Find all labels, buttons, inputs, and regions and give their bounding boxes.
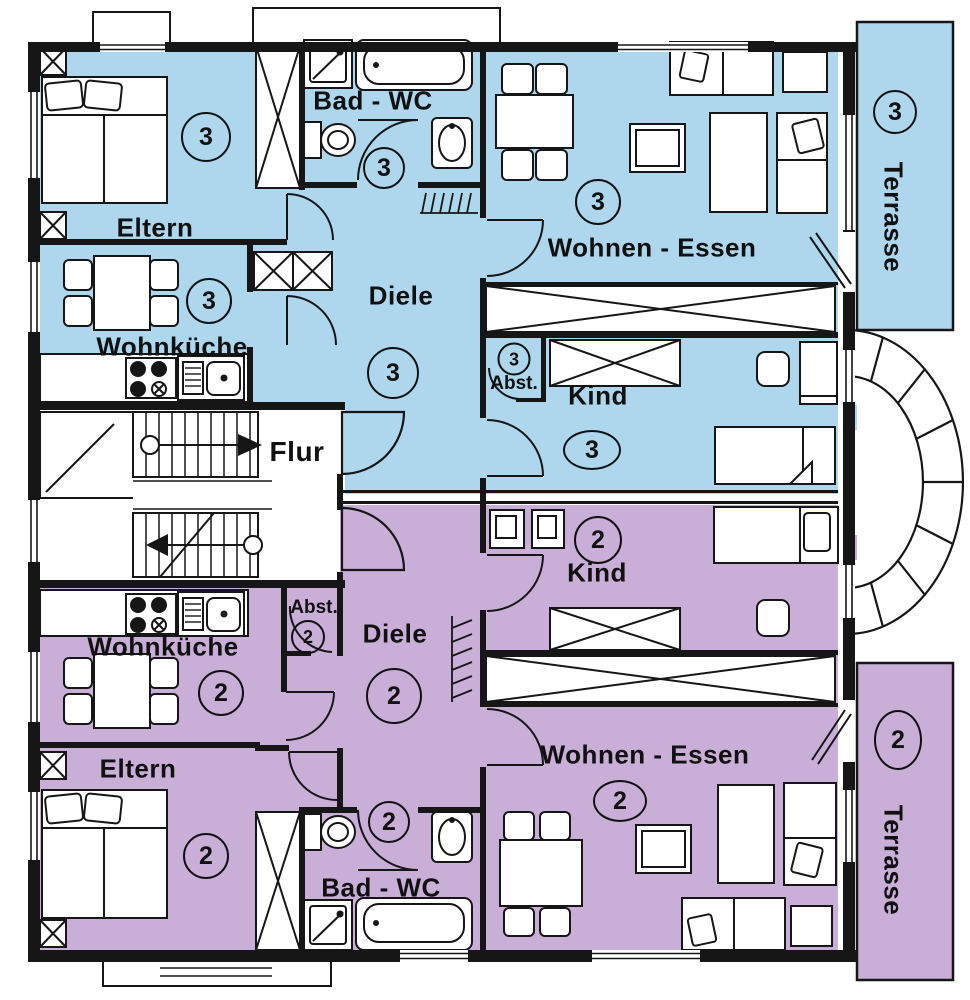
room-label-wohnkueche-2: Wohnküche	[87, 632, 238, 663]
badge-wohnen-essen-2: 2	[593, 780, 647, 822]
room-label-badwc-2: Bad - WC	[321, 873, 441, 904]
shower	[304, 900, 352, 950]
double-bed	[42, 77, 167, 203]
washbasin	[432, 812, 472, 862]
floor-plan: Flur Eltern Wohnküche Bad - WC Diele Abs…	[0, 0, 970, 1000]
child-wardrobe	[550, 340, 680, 386]
room-label-eltern-3: Eltern	[117, 213, 194, 244]
hall-cabinet	[254, 252, 332, 290]
badge-badwc-3: 3	[363, 147, 405, 189]
badge-eltern-3: 3	[181, 112, 231, 162]
coffee-table	[636, 825, 691, 873]
badge-terrasse-3: 3	[873, 90, 917, 134]
daybed	[777, 113, 827, 213]
room-label-eltern-2: Eltern	[100, 754, 177, 785]
badge-terrasse-2: 2	[874, 710, 922, 770]
entrance-vestibule	[40, 412, 133, 498]
badge-badwc-2: 2	[368, 801, 410, 843]
side-table	[783, 52, 827, 92]
badge-eltern-2: 2	[183, 833, 229, 879]
kitchen-counter	[40, 590, 248, 636]
toilet	[304, 814, 355, 850]
room-label-diele-2: Diele	[363, 619, 428, 650]
badge-wohnkueche-3: 3	[186, 278, 232, 324]
badge-diele-2: 2	[366, 668, 422, 724]
badge-kind-2: 2	[574, 516, 622, 564]
wardrobe-row	[486, 286, 835, 332]
daybed	[784, 783, 836, 885]
badge-wohnen-essen-3: 3	[575, 179, 621, 225]
wardrobe	[256, 812, 300, 950]
nightstand-child	[757, 352, 789, 386]
room-label-terrasse-2: Terrasse	[878, 805, 909, 916]
child-bed	[715, 427, 835, 484]
room-label-badwc-3: Bad - WC	[313, 86, 433, 117]
badge-diele-3: 3	[367, 347, 419, 399]
room-label-abst-2: Abst.	[290, 597, 338, 619]
sofa	[682, 898, 785, 950]
room-label-kind-3: Kind	[568, 381, 628, 412]
child-bed	[714, 507, 838, 563]
curved-outdoor-stair	[847, 330, 963, 634]
dining-table-living	[500, 812, 582, 936]
badge-kind-3: 3	[563, 430, 621, 470]
washbasin	[432, 118, 472, 168]
floor-plan-drawing	[0, 0, 970, 1000]
room-label-wohnen-essen-2: Wohnen - Essen	[541, 740, 750, 771]
wardrobe-row	[486, 656, 835, 702]
double-bed	[42, 790, 167, 918]
desk	[800, 342, 837, 404]
room-label-diele-3: Diele	[369, 281, 434, 312]
staircase	[133, 412, 272, 577]
badge-abst-3: 3	[498, 343, 531, 376]
sideboard	[710, 113, 767, 212]
child-wardrobe	[550, 608, 680, 650]
room-label-flur: Flur	[270, 436, 325, 468]
room-label-terrasse-3: Terrasse	[878, 162, 909, 273]
side-table	[791, 906, 832, 946]
badge-abst-2: 2	[291, 620, 325, 654]
room-label-wohnen-essen-3: Wohnen - Essen	[548, 233, 757, 264]
coffee-table	[630, 124, 685, 172]
badge-wohnkueche-2: 2	[198, 670, 244, 716]
nightstand-child	[757, 600, 789, 636]
wardrobe	[256, 46, 300, 188]
bathtub	[356, 898, 472, 950]
room-label-wohnkueche-3: Wohnküche	[96, 332, 247, 363]
sideboard	[718, 785, 774, 883]
toilet	[304, 122, 355, 158]
room-label-abst-3: Abst.	[490, 373, 538, 395]
